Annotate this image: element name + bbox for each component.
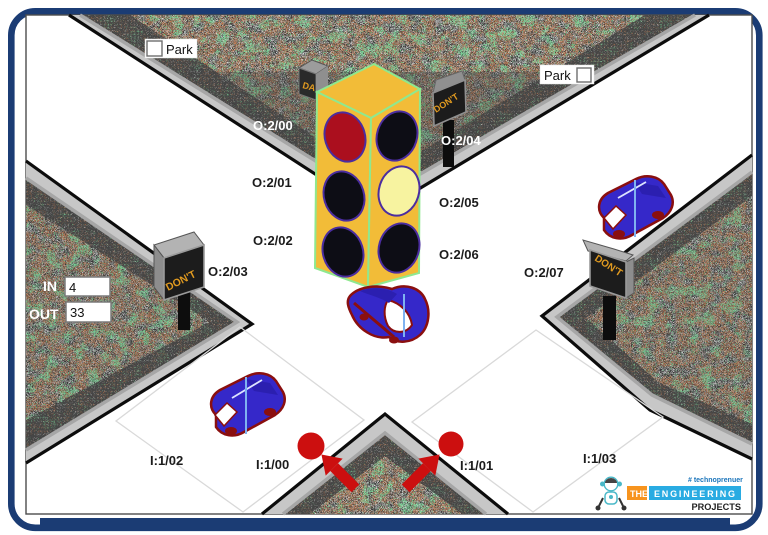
svg-text:OUT: OUT xyxy=(29,306,59,322)
svg-text:THE: THE xyxy=(630,489,648,499)
svg-text:I:1/03: I:1/03 xyxy=(583,451,616,466)
svg-text:O:2/03: O:2/03 xyxy=(208,264,248,279)
svg-text:ENGINEERING: ENGINEERING xyxy=(654,489,737,499)
svg-text:IN: IN xyxy=(43,278,57,294)
svg-text:I:1/00: I:1/00 xyxy=(256,457,289,472)
svg-text:Park: Park xyxy=(166,42,193,57)
svg-text:I:1/01: I:1/01 xyxy=(460,458,493,473)
svg-text:# technoprenuer: # technoprenuer xyxy=(688,477,743,484)
svg-text:O:2/05: O:2/05 xyxy=(439,195,479,210)
svg-text:Park: Park xyxy=(544,68,571,83)
svg-text:33: 33 xyxy=(70,305,84,320)
svg-text:4: 4 xyxy=(69,280,76,295)
svg-text:PROJECTS: PROJECTS xyxy=(691,502,741,512)
svg-text:O:2/06: O:2/06 xyxy=(439,247,479,262)
svg-text:O:2/01: O:2/01 xyxy=(252,175,292,190)
svg-text:O:2/04: O:2/04 xyxy=(441,133,482,148)
svg-text:I:1/02: I:1/02 xyxy=(150,453,183,468)
svg-text:O:2/00: O:2/00 xyxy=(253,118,293,133)
svg-text:O:2/07: O:2/07 xyxy=(524,265,564,280)
svg-text:O:2/02: O:2/02 xyxy=(253,233,293,248)
